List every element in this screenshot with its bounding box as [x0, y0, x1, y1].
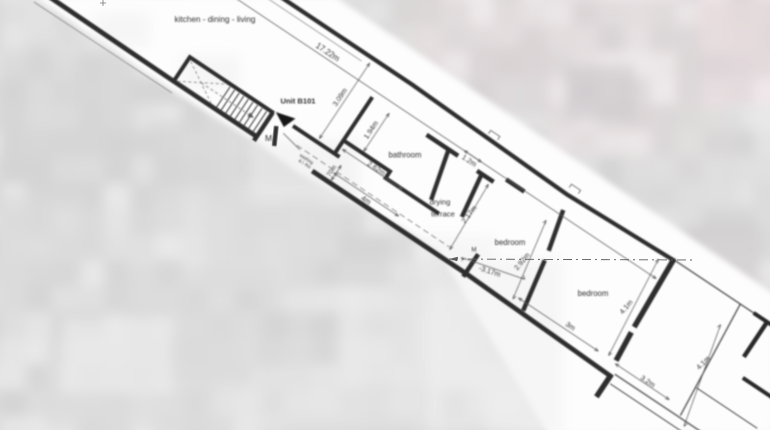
svg-text:kitchen - dining - living: kitchen - dining - living [174, 15, 255, 24]
svg-text:bedroom: bedroom [578, 289, 609, 298]
svg-text:terrace: terrace [431, 210, 455, 219]
svg-text:bedroom: bedroom [495, 238, 526, 247]
svg-text:drying: drying [430, 198, 451, 207]
svg-text:M: M [265, 133, 272, 143]
svg-text:Unit B101: Unit B101 [280, 97, 316, 106]
svg-text:bathroom: bathroom [389, 151, 422, 160]
svg-text:M: M [471, 247, 476, 254]
